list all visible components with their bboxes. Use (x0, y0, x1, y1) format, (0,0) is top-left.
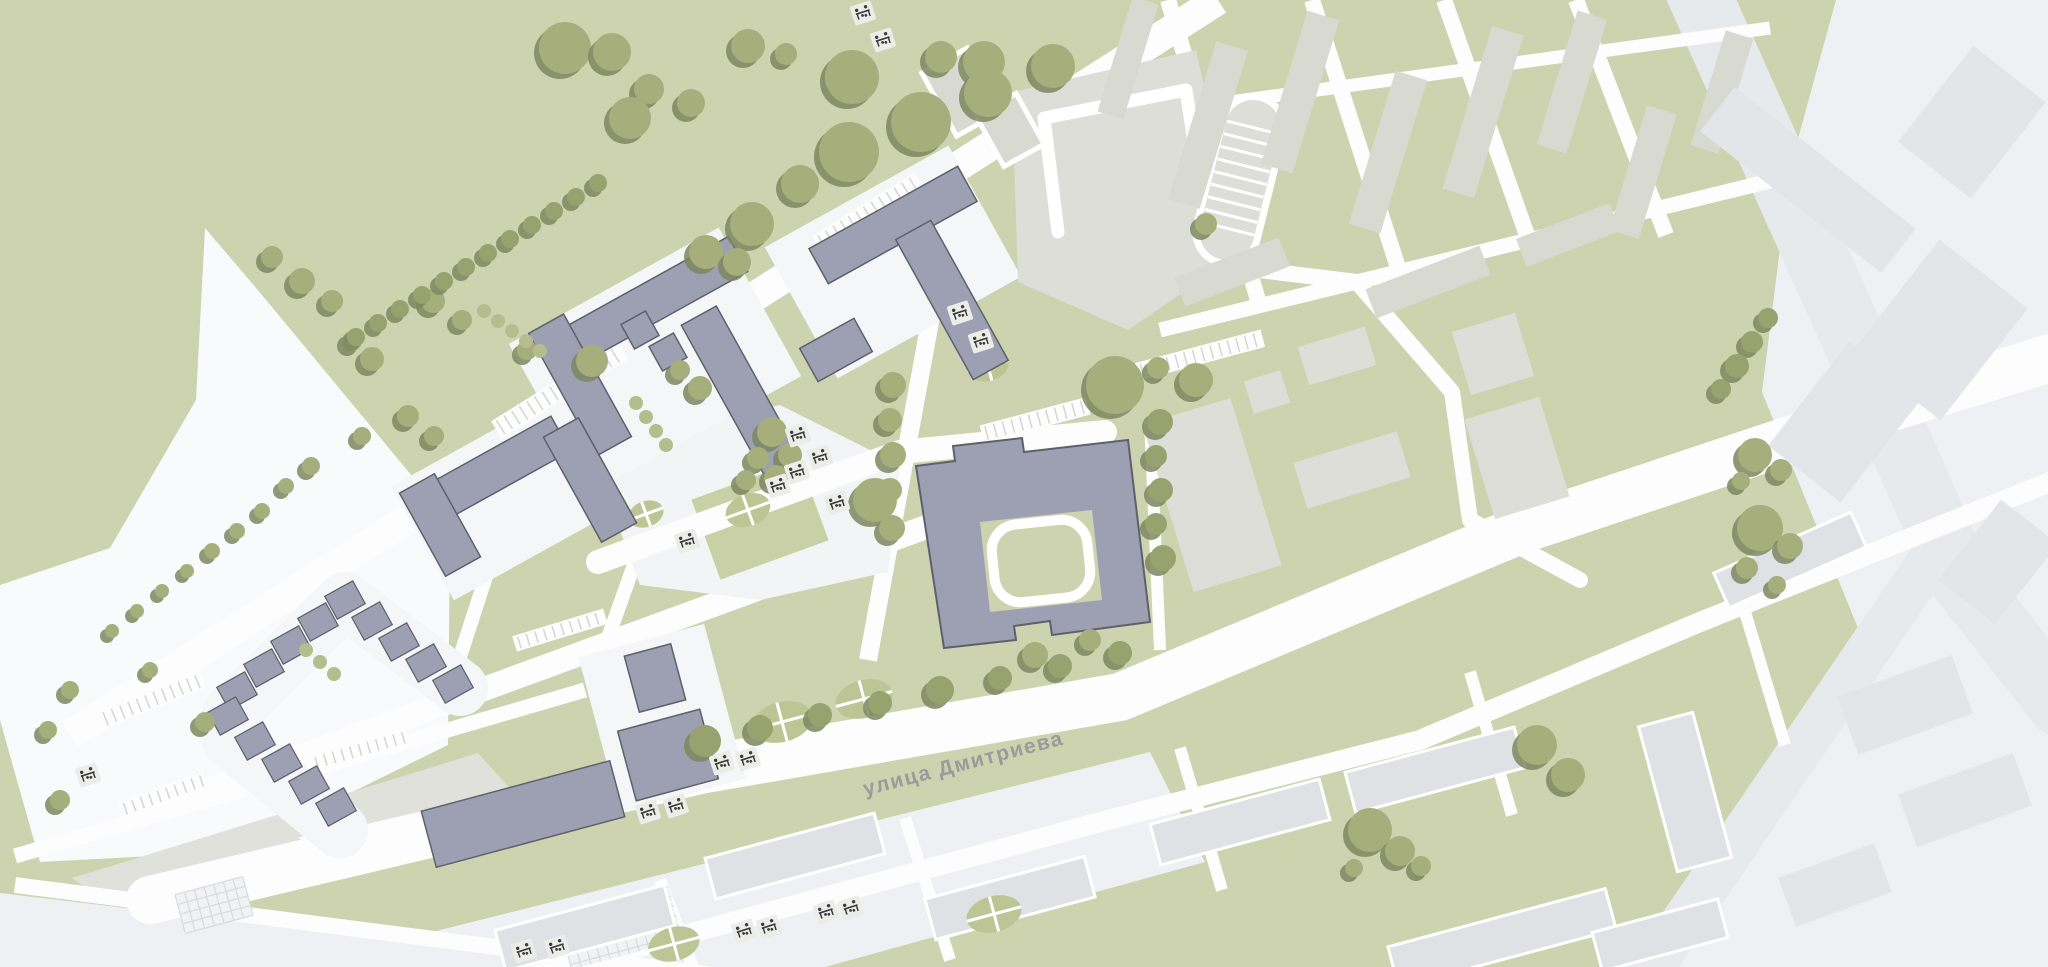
tree (321, 290, 343, 312)
tree (689, 235, 723, 269)
tree (1345, 859, 1363, 877)
shrub (313, 655, 327, 669)
tree (775, 43, 797, 65)
tree (609, 97, 651, 139)
shrub (629, 396, 643, 410)
tree (731, 29, 765, 63)
tree (1195, 213, 1217, 235)
tree (1711, 379, 1731, 399)
tree (360, 347, 384, 371)
tree (523, 216, 541, 234)
tree (868, 691, 892, 715)
tree (589, 174, 607, 192)
tree (1517, 725, 1557, 765)
site-plan-map: улица Дмитриева (0, 0, 2048, 967)
shrub (505, 324, 519, 338)
tree (879, 515, 905, 541)
tree (808, 703, 832, 727)
tree (479, 244, 497, 262)
tree (1145, 445, 1167, 467)
shrub (477, 304, 491, 318)
tree (347, 328, 365, 346)
tree (204, 543, 220, 559)
tree (1147, 357, 1169, 379)
tree (567, 188, 585, 206)
tree (1179, 363, 1213, 397)
shrub (299, 643, 313, 657)
tree (1777, 533, 1803, 559)
tree (880, 442, 906, 468)
tree (289, 268, 315, 294)
tree (435, 272, 453, 290)
tree (747, 715, 773, 741)
tree (278, 478, 294, 494)
tree (825, 50, 879, 104)
tree (61, 681, 79, 699)
tree (130, 604, 144, 618)
tree (50, 790, 70, 810)
tree (730, 202, 774, 246)
tree (1725, 354, 1749, 378)
tree (195, 712, 215, 732)
tree (39, 721, 57, 739)
tree (545, 202, 563, 220)
tree (155, 584, 169, 598)
tree (1086, 356, 1144, 414)
tree (1108, 641, 1132, 665)
tree (413, 286, 431, 304)
tree (1048, 654, 1072, 678)
shrub (519, 334, 533, 348)
shrub (639, 410, 653, 424)
tree (1147, 409, 1173, 435)
tree (1738, 438, 1772, 472)
tree (1022, 642, 1048, 668)
tree (369, 314, 387, 332)
shrub (327, 667, 341, 681)
tree (1411, 856, 1431, 876)
tree (105, 624, 119, 638)
tree (736, 470, 756, 490)
tree (1758, 308, 1778, 328)
tree (925, 41, 957, 73)
tree (254, 503, 270, 519)
tree (878, 408, 902, 432)
tree (1736, 557, 1758, 579)
tree (1031, 44, 1075, 88)
tree (424, 426, 444, 446)
tree (1079, 629, 1101, 651)
tree (452, 310, 472, 330)
tree (397, 405, 419, 427)
shrub (491, 314, 505, 328)
tree (593, 33, 631, 71)
tree (880, 372, 906, 398)
tree (819, 122, 879, 182)
tree (1732, 472, 1750, 490)
tree (353, 427, 371, 445)
tree (576, 345, 608, 377)
tree (1150, 545, 1176, 571)
tree (891, 92, 951, 152)
tree (142, 662, 158, 678)
tree (670, 360, 690, 380)
tree (964, 69, 1012, 117)
tree (723, 248, 751, 276)
tree (180, 564, 194, 578)
tree (1385, 836, 1415, 866)
tree (1770, 459, 1792, 481)
tree (539, 22, 591, 74)
tree (926, 676, 954, 704)
tree (457, 258, 475, 276)
shrub (533, 344, 547, 358)
tree (229, 523, 245, 539)
tree (1741, 331, 1763, 353)
tree (677, 89, 705, 117)
map-generated-layers (0, 0, 2048, 967)
tree (689, 725, 721, 757)
tree (988, 666, 1012, 690)
tree (1149, 478, 1173, 502)
tree (391, 300, 409, 318)
tree (781, 165, 819, 203)
tree (688, 376, 712, 400)
layer-school-courtyard (980, 510, 1102, 612)
shrub (649, 424, 663, 438)
shrub (659, 438, 673, 452)
tree (757, 417, 787, 447)
tree (261, 246, 283, 268)
tree (1768, 576, 1786, 594)
tree (1145, 513, 1167, 535)
tree (302, 457, 320, 475)
tree (747, 447, 769, 469)
tree (1551, 758, 1585, 792)
site-plan-svg: улица Дмитриева (0, 0, 2048, 967)
tree (501, 230, 519, 248)
